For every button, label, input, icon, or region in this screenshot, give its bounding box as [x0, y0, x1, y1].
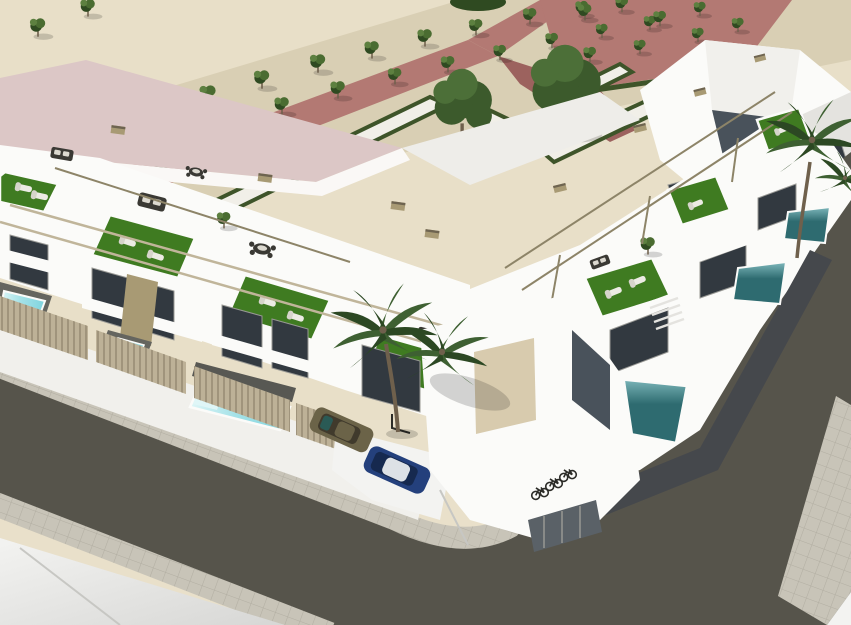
pool-teal [784, 207, 830, 243]
render-canvas [0, 0, 851, 625]
pool-teal [733, 262, 786, 304]
faceted-building-facet [705, 40, 800, 120]
architectural-render [0, 0, 851, 625]
